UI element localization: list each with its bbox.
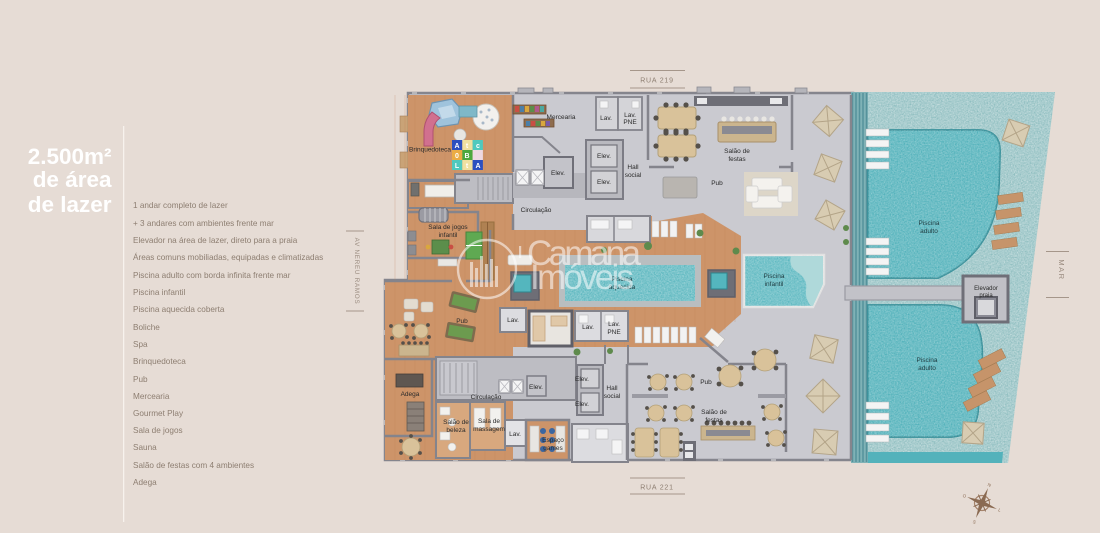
svg-text:adulto: adulto <box>920 228 938 235</box>
svg-text:festas: festas <box>728 156 746 163</box>
svg-text:Adega: Adega <box>401 391 420 398</box>
svg-text:praia: praia <box>979 293 993 299</box>
svg-text:Piscina: Piscina <box>764 273 785 280</box>
svg-text:Gourmet Play: Gourmet Play <box>133 409 184 418</box>
svg-text:Mercearia: Mercearia <box>133 392 170 401</box>
svg-text:social: social <box>604 393 621 400</box>
svg-text:Piscina: Piscina <box>917 357 938 364</box>
svg-text:PNE: PNE <box>607 329 621 336</box>
svg-text:PNE: PNE <box>623 119 637 126</box>
svg-text:Elev.: Elev. <box>529 384 543 391</box>
svg-text:Pub: Pub <box>700 379 712 386</box>
svg-text:Lav.: Lav. <box>509 431 521 438</box>
svg-text:Piscina: Piscina <box>919 220 940 227</box>
svg-text:Piscina aquecida coberta: Piscina aquecida coberta <box>133 305 225 314</box>
svg-text:Sala de: Sala de <box>478 418 500 425</box>
svg-text:Espaço: Espaço <box>542 437 564 444</box>
svg-text:Sala de jogos: Sala de jogos <box>428 224 468 231</box>
svg-text:Brinquedoteca: Brinquedoteca <box>133 357 186 366</box>
svg-text:Salão de: Salão de <box>443 419 469 426</box>
svg-text:games: games <box>543 445 563 452</box>
svg-text:B: B <box>464 153 469 160</box>
svg-text:c: c <box>476 143 480 150</box>
svg-text:social: social <box>625 172 642 179</box>
svg-text:infantil: infantil <box>765 281 784 288</box>
svg-text:adulto: adulto <box>918 365 936 372</box>
svg-text:Sauna: Sauna <box>133 443 157 452</box>
svg-text:Circulação: Circulação <box>521 207 552 214</box>
svg-text:Elev.: Elev. <box>575 376 589 383</box>
svg-text:Lav.: Lav. <box>608 321 620 328</box>
svg-text:Elevador: Elevador <box>974 286 998 292</box>
svg-text:A: A <box>475 163 480 170</box>
svg-text:Imóveis: Imóveis <box>530 258 634 297</box>
svg-text:Spa: Spa <box>133 340 148 349</box>
svg-text:RUA 221: RUA 221 <box>640 485 674 492</box>
svg-text:Hall: Hall <box>606 385 618 392</box>
svg-text:0: 0 <box>455 153 459 160</box>
svg-text:Circulação: Circulação <box>471 394 502 401</box>
svg-text:L: L <box>455 163 460 170</box>
svg-text:Brinquedoteca: Brinquedoteca <box>409 147 451 154</box>
svg-text:RUA 219: RUA 219 <box>640 78 674 85</box>
svg-text:2.500m²: 2.500m² <box>28 144 112 169</box>
svg-text:Salão de festas com 4 ambiente: Salão de festas com 4 ambientes <box>133 461 254 470</box>
svg-text:+ 3 andares com ambientes fren: + 3 andares com ambientes frente mar <box>133 219 274 228</box>
svg-text:Elevador na área de lazer, dir: Elevador na área de lazer, direto para a… <box>133 236 298 245</box>
svg-text:MAR: MAR <box>1057 259 1066 280</box>
svg-text:Pub: Pub <box>711 180 723 187</box>
svg-text:Elev.: Elev. <box>575 401 589 408</box>
svg-text:Adega: Adega <box>133 478 157 487</box>
svg-text:Mercearia: Mercearia <box>547 114 576 121</box>
svg-text:Lav.: Lav. <box>624 112 636 119</box>
svg-text:Sala de jogos: Sala de jogos <box>133 426 183 435</box>
svg-text:Pub: Pub <box>456 318 468 325</box>
svg-text:beleza: beleza <box>446 427 466 434</box>
svg-text:Áreas comuns mobiliadas, equip: Áreas comuns mobiliadas, equipadas e cli… <box>133 252 323 262</box>
svg-text:Pub: Pub <box>133 375 148 384</box>
svg-text:de área: de área <box>33 167 112 192</box>
svg-text:Piscina infantil: Piscina infantil <box>133 288 186 297</box>
svg-text:massagem: massagem <box>473 426 505 433</box>
svg-text:Piscina adulto com borda infin: Piscina adulto com borda infinita frente… <box>133 271 291 280</box>
svg-text:1 andar completo de lazer: 1 andar completo de lazer <box>133 201 228 210</box>
svg-text:Hall: Hall <box>627 164 639 171</box>
svg-text:Lav.: Lav. <box>582 324 594 331</box>
svg-text:de lazer: de lazer <box>28 192 112 217</box>
svg-text:Lav.: Lav. <box>507 317 519 324</box>
svg-text:infantil: infantil <box>439 232 458 239</box>
svg-text:Lav.: Lav. <box>600 115 612 122</box>
svg-text:AV NEREU RAMOS: AV NEREU RAMOS <box>353 238 360 305</box>
svg-text:Boliche: Boliche <box>133 323 160 332</box>
svg-text:Elev.: Elev. <box>597 153 611 160</box>
svg-text:A: A <box>454 143 459 150</box>
svg-text:Salão de: Salão de <box>724 148 750 155</box>
svg-text:festas: festas <box>705 417 723 424</box>
svg-text:Salão de: Salão de <box>701 409 727 416</box>
svg-text:Elev.: Elev. <box>551 170 565 177</box>
svg-text:Elev.: Elev. <box>597 179 611 186</box>
